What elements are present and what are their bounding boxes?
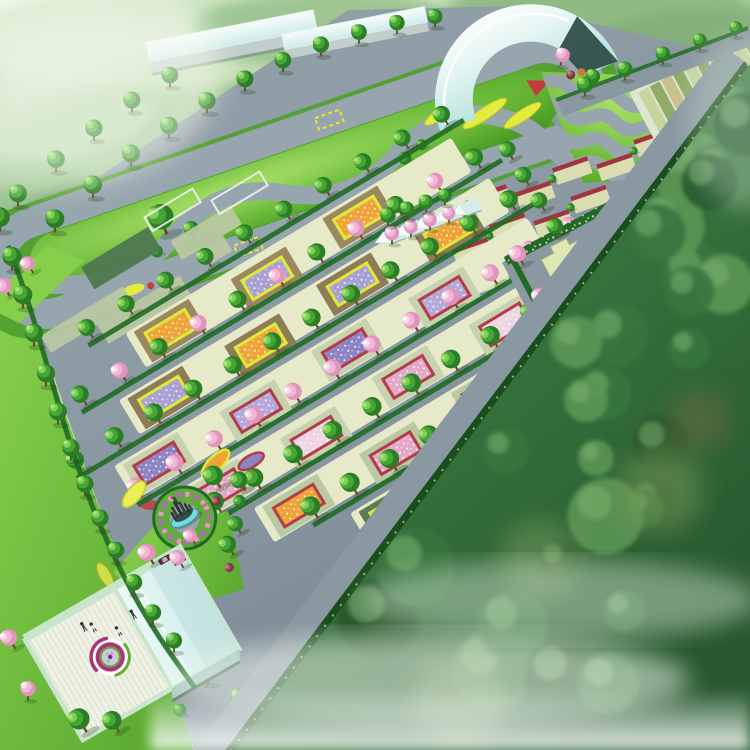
forest-clump [664,266,714,316]
forest-clump-highlight [639,422,664,447]
forest-clump-highlight [582,444,598,460]
scene-canvas [0,0,750,750]
forest-clump-highlight [671,271,694,294]
forest-clump-highlight [577,486,611,520]
forest-clump-highlight [673,332,692,351]
forest-clump [550,316,602,368]
forest-clump-highlight [569,382,589,402]
forest-clump-highlight [488,433,509,454]
forest-clump [564,378,608,422]
forest-clump-highlight [635,210,661,236]
forest-clump [578,440,614,476]
forest-clump-highlight [557,321,580,344]
forest-clump [482,428,528,474]
aerial-site-rendering [0,0,750,750]
forest-clump [668,328,710,370]
